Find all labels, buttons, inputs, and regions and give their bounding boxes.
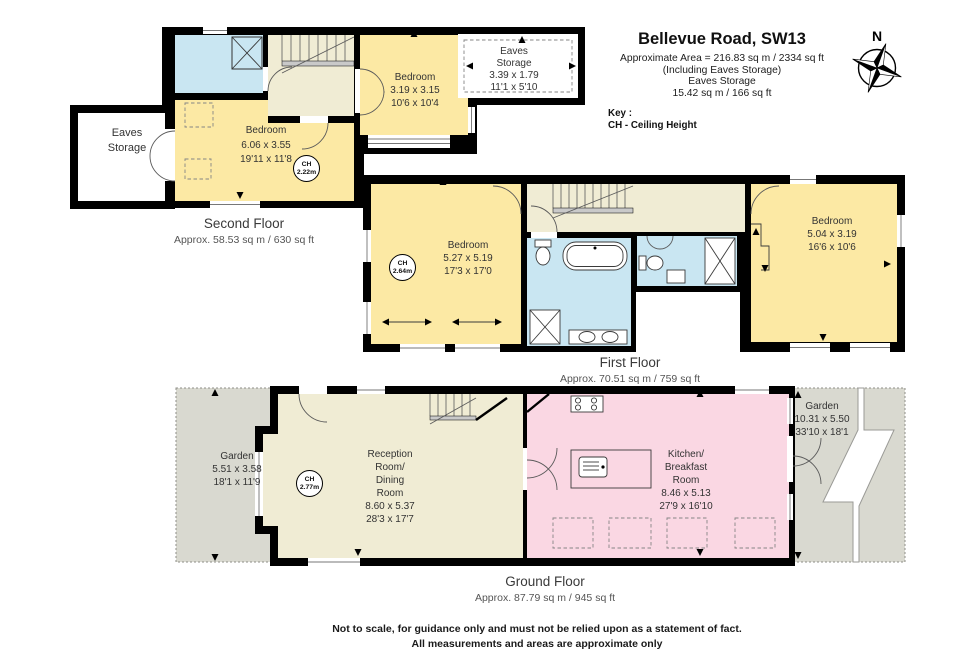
room-name: Room/ [365,461,414,474]
ch-value: 2.77m [300,484,319,492]
room-dim-metric: 6.06 x 3.55 [240,139,292,154]
room-dim-metric: 5.04 x 3.19 [807,228,856,241]
floor-area: Approx. 58.53 sq m / 630 sq ft [174,234,314,246]
room-bedroom-right [751,184,897,342]
room-name: Eaves [108,126,147,141]
room-label-reception: Reception Room/ Dining Room 8.60 x 5.37 … [365,448,414,526]
room-name: Garden [794,400,849,413]
room-reception-bay [263,434,283,526]
room-name: Breakfast [659,461,712,474]
room-name: Bedroom [390,71,439,84]
room-name: Storage [489,58,538,70]
second-floor-caption: Second Floor Approx. 58.53 sq m / 630 sq… [174,216,314,246]
floorplan-page: Bellevue Road, SW13 Approximate Area = 2… [0,0,980,672]
sink-icon [569,330,627,344]
ground-floor-caption: Ground Floor Approx. 87.79 sq m / 945 sq… [475,574,615,604]
room-dim-metric: 5.51 x 3.58 [212,463,261,476]
room-dim-imperial: 33'10 x 18'1 [794,426,849,439]
room-label-kitchen: Kitchen/ Breakfast Room 8.46 x 5.13 27'9… [659,448,712,513]
room-name: Room [659,474,712,487]
room-dim-imperial: 11'1 x 5'10 [489,82,538,94]
room-dim-imperial: 10'6 x 10'4 [390,97,439,110]
disclaimer-line: Not to scale, for guidance only and must… [332,622,742,637]
room-label-garden-left: Garden 5.51 x 3.58 18'1 x 11'9 [212,450,261,489]
page-title: Bellevue Road, SW13 [638,30,806,49]
room-kitchen [527,394,789,558]
room-label-eaves-storage-left: Eaves Storage [108,126,147,156]
ceiling-height-badge: CH 2.77m [296,470,323,497]
compass-icon: N [851,28,903,96]
first-floor-caption: First Floor Approx. 70.51 sq m / 759 sq … [560,355,700,385]
room-label-bedroom-small: Bedroom 3.19 x 3.15 10'6 x 10'4 [390,71,439,110]
room-label-eaves-storage-right: Eaves Storage 3.39 x 1.79 11'1 x 5'10 [489,46,538,94]
stove-icon [571,396,603,412]
room-dim-imperial: 17'3 x 17'0 [443,265,492,278]
disclaimer: Not to scale, for guidance only and must… [332,622,742,651]
ceiling-height-badge: CH 2.22m [293,155,320,182]
room-label-garden-right: Garden 10.31 x 5.50 33'10 x 18'1 [794,400,849,439]
room-dim-metric: 3.19 x 3.15 [390,84,439,97]
ch-value: 2.22m [297,169,316,177]
area-line: 15.42 sq m / 166 sq ft [620,88,824,100]
approximate-area-text: Approximate Area = 216.83 sq m / 2334 sq… [620,53,824,99]
area-line: (Including Eaves Storage) [620,65,824,77]
room-name: Bedroom [807,215,856,228]
toilet-icon [535,240,551,265]
room-name: Storage [108,141,147,156]
room-name: Dining [365,474,414,487]
key-legend: Key : CH - Ceiling Height [608,108,697,131]
room-label-bedroom-left: Bedroom 5.27 x 5.19 17'3 x 17'0 [443,239,492,278]
shower-icon [232,37,262,69]
room-dim-metric: 5.27 x 5.19 [443,252,492,265]
key-text: CH - Ceiling Height [608,120,697,132]
floor-area: Approx. 70.51 sq m / 759 sq ft [560,373,700,385]
exterior-notch [636,290,740,352]
ch-label: CH [302,161,312,169]
room-dim-imperial: 18'1 x 11'9 [212,476,261,489]
room-name: Kitchen/ [659,448,712,461]
room-dim-imperial: 16'6 x 10'6 [807,241,856,254]
ceiling-height-badge: CH 2.64m [389,254,416,281]
ch-label: CH [398,260,408,268]
room-dim-metric: 3.39 x 1.79 [489,70,538,82]
room-dim-metric: 10.31 x 5.50 [794,413,849,426]
shower-icon [530,310,560,344]
room-label-bedroom-main: Bedroom 6.06 x 3.55 19'11 x 11'8 [240,124,292,168]
floor-title: Second Floor [174,216,314,231]
room-name: Bedroom [240,124,292,139]
area-line: Approximate Area = 216.83 sq m / 2334 sq… [620,53,824,65]
room-name: Reception [365,448,414,461]
room-dim-imperial: 28'3 x 17'7 [365,513,414,526]
area-line: Eaves Storage [620,76,824,88]
room-landing [268,35,354,116]
room-dim-metric: 8.60 x 5.37 [365,500,414,513]
room-name: Room [365,487,414,500]
bath-icon [563,242,627,270]
disclaimer-line: All measurements and areas are approxima… [332,637,742,652]
ch-label: CH [305,476,315,484]
room-name: Eaves [489,46,538,58]
shower-icon [705,238,735,284]
floor-title: First Floor [560,355,700,370]
ch-value: 2.64m [393,268,412,276]
compass-north-label: N [872,28,882,44]
room-dim-metric: 8.46 x 5.13 [659,487,712,500]
toilet-icon [639,256,663,270]
room-dim-imperial: 27'9 x 16'10 [659,500,712,513]
floor-area: Approx. 87.79 sq m / 945 sq ft [475,592,615,604]
room-dim-imperial: 19'11 x 11'8 [240,153,292,168]
room-name: Garden [212,450,261,463]
key-label: Key : [608,108,697,120]
room-label-bedroom-right: Bedroom 5.04 x 3.19 16'6 x 10'6 [807,215,856,254]
floor-title: Ground Floor [475,574,615,589]
room-name: Bedroom [443,239,492,252]
sink-icon [667,270,685,283]
